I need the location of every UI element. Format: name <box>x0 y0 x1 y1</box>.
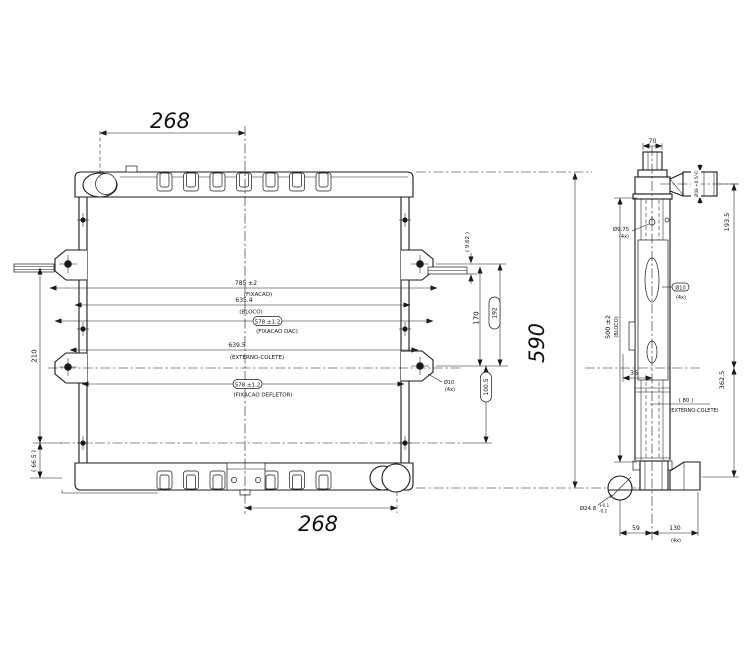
hole-note-value-label: Ø10 <box>444 379 454 386</box>
front-width-dimensions: 785 ±2 (FIXACAO) 635.4 (BLOCO) 578 ±1.2 … <box>50 280 437 399</box>
outlet-value-label: Ø24.8 <box>580 505 597 512</box>
bracket-lower-right <box>401 351 442 382</box>
side-bottom <box>608 458 700 500</box>
dim-core-note-label: (BLOCO) <box>614 316 620 337</box>
dim-plate-offset-label: ( 9.62 ) <box>465 232 471 252</box>
outlet-tol-plus-label: +0.1 <box>599 503 610 508</box>
dim-left-span-label: 210 <box>31 349 39 362</box>
fan-pill-qty-label: (4x) <box>676 295 686 301</box>
side-tab <box>629 322 635 350</box>
hole-note-qty-label: (4x) <box>445 387 455 393</box>
fan-pill-value-label: Ø10 <box>675 285 685 292</box>
dim-core-label: 500 ±2 <box>604 315 612 339</box>
front-right-dimensions: ( 9.62 ) 170 192 100.5 Ø10 (4x) <box>436 232 508 443</box>
overflow-tab <box>126 166 137 172</box>
dim-foot-b-label: 130 <box>669 525 681 532</box>
technical-drawing-page: 785 ±2 (FIXACAO) 635.4 (BLOCO) 578 ±1.2 … <box>0 0 756 650</box>
dim-total-height-label: 590 <box>525 323 549 363</box>
dim-upper-label: 193.5 <box>723 213 731 232</box>
dim-foot-qty-label: (4x) <box>671 538 681 544</box>
width-dim-2-note: (FIXACAO DAC) <box>256 329 298 335</box>
pill-lower-label: 100.5 <box>483 378 490 395</box>
bracket-upper-left <box>55 250 87 280</box>
bottom-outlet-port <box>370 464 410 492</box>
width-dim-3-value: 639.5 <box>228 342 245 349</box>
bracket-upper-right <box>401 250 467 280</box>
width-dim-4-value: 578 ±1.2 <box>235 383 261 389</box>
side-view: 70 Ø48 +0.5/-0 Ø9.75 (4x) 193.5 362.5 50… <box>580 138 739 544</box>
dim-top-width-label: 268 <box>150 109 190 133</box>
left-mount-rod <box>14 264 54 272</box>
rail-pins <box>77 213 411 450</box>
width-dim-1-note: (BLOCO) <box>239 310 262 316</box>
ref-colete-label: ( 80 ) <box>679 398 694 404</box>
width-dim-3-note: (EXTERNO-COLETE) <box>230 355 284 361</box>
dim-foot-a-label: 59 <box>632 525 640 532</box>
pill-upper-label: 192 <box>492 307 499 319</box>
hole-value-label: Ø9.75 <box>613 226 630 233</box>
width-dim-1-value: 635.4 <box>235 297 252 304</box>
dim-left-foot-label: ( 66.5 ) <box>31 450 38 472</box>
dim-bottom-width-label: 268 <box>298 512 338 536</box>
filler-neck <box>633 152 672 199</box>
mounting-foot <box>670 462 700 490</box>
dim-lower-label: 362.5 <box>718 371 726 390</box>
dim-inlet-label: Ø48 +0.5/-0 <box>694 171 699 197</box>
center-mount-plate <box>227 463 265 495</box>
dim-bracket-span-label: 170 <box>473 311 481 324</box>
outlet-tol-minus-label: -0.2 <box>599 509 608 514</box>
ref-colete-note-label: (EXTERNO-COLETE) <box>669 408 718 414</box>
core-rails <box>79 197 409 463</box>
width-dim-2-value: 578 ±1.2 <box>255 320 281 326</box>
dim-neck-label: 70 <box>649 138 657 145</box>
front-view: 785 ±2 (FIXACAO) 635.4 (BLOCO) 578 ±1.2 … <box>14 109 650 536</box>
width-dim-0-value: 785 ±2 <box>235 280 257 287</box>
fan-shroud <box>638 240 668 380</box>
dim-tab-label: 36 <box>630 370 638 377</box>
hole-qty-label: (4x) <box>619 234 629 240</box>
width-dim-4-note: (FIXACAO DEFLETOR) <box>233 393 292 399</box>
radiator-two-view-drawing: 785 ±2 (FIXACAO) 635.4 (BLOCO) 578 ±1.2 … <box>0 0 756 650</box>
